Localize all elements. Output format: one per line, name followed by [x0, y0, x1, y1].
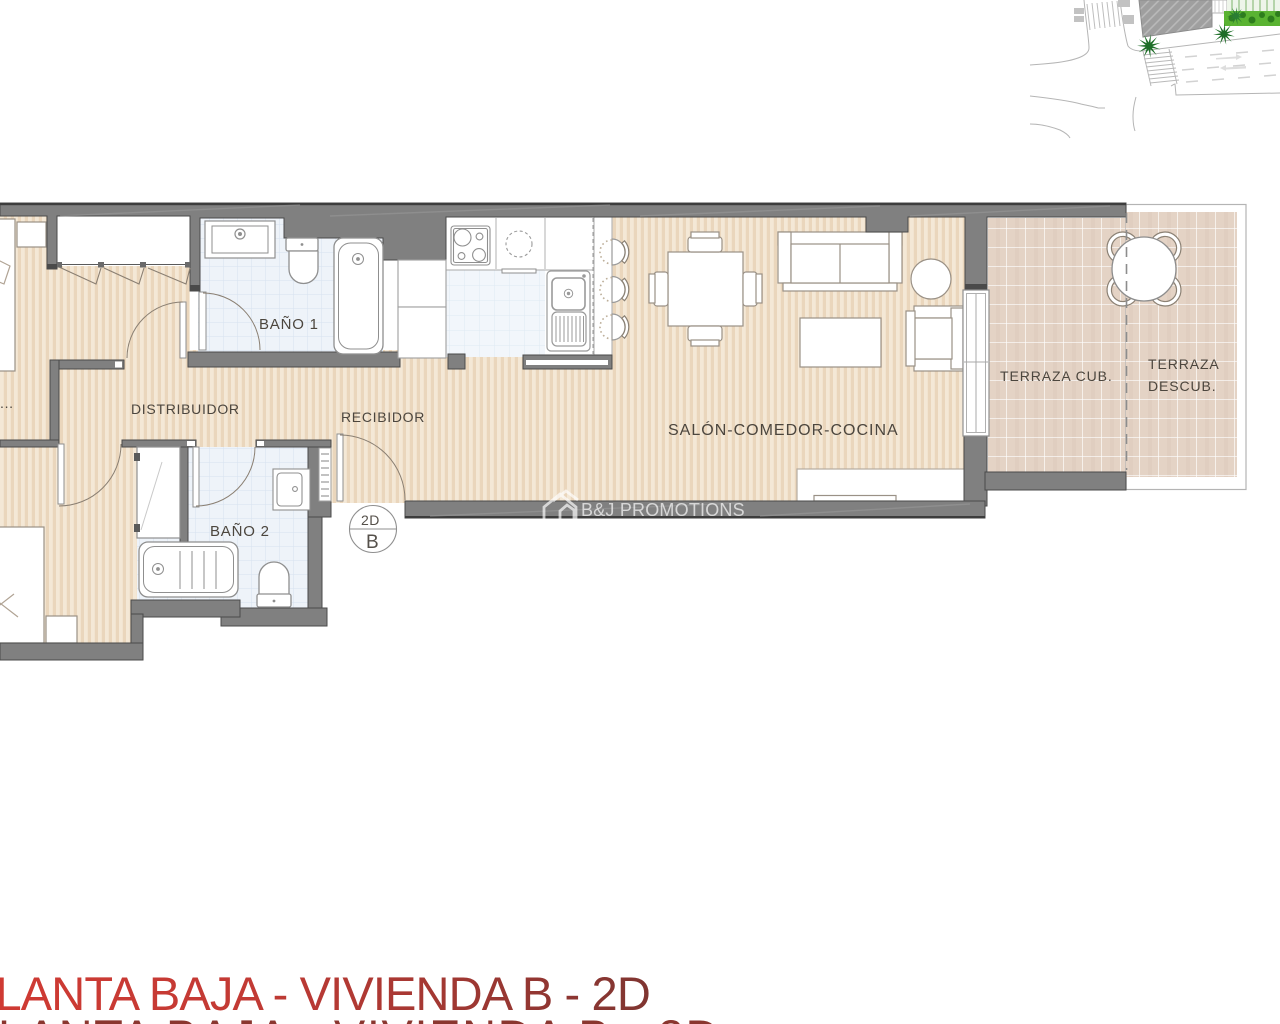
svg-text:B&J PROMOTIONS: B&J PROMOTIONS — [581, 500, 745, 520]
svg-text:BAÑO 2: BAÑO 2 — [210, 523, 270, 540]
svg-text:DISTRIBUIDOR: DISTRIBUIDOR — [131, 401, 240, 417]
svg-text:DESCUB.: DESCUB. — [1148, 378, 1217, 394]
svg-text:B: B — [366, 532, 379, 553]
svg-text:...: ... — [0, 395, 14, 411]
svg-text:PLANTA BAJA - VIVIENDA B - 2D: PLANTA BAJA - VIVIENDA B - 2D — [0, 1010, 721, 1024]
svg-text:BAÑO 1: BAÑO 1 — [259, 316, 319, 333]
svg-text:RECIBIDOR: RECIBIDOR — [341, 409, 425, 425]
svg-text:SALÓN-COMEDOR-COCINA: SALÓN-COMEDOR-COCINA — [668, 420, 899, 439]
svg-text:TERRAZA CUB.: TERRAZA CUB. — [1000, 368, 1113, 384]
svg-text:2D: 2D — [361, 512, 380, 528]
svg-text:TERRAZA: TERRAZA — [1148, 356, 1220, 372]
